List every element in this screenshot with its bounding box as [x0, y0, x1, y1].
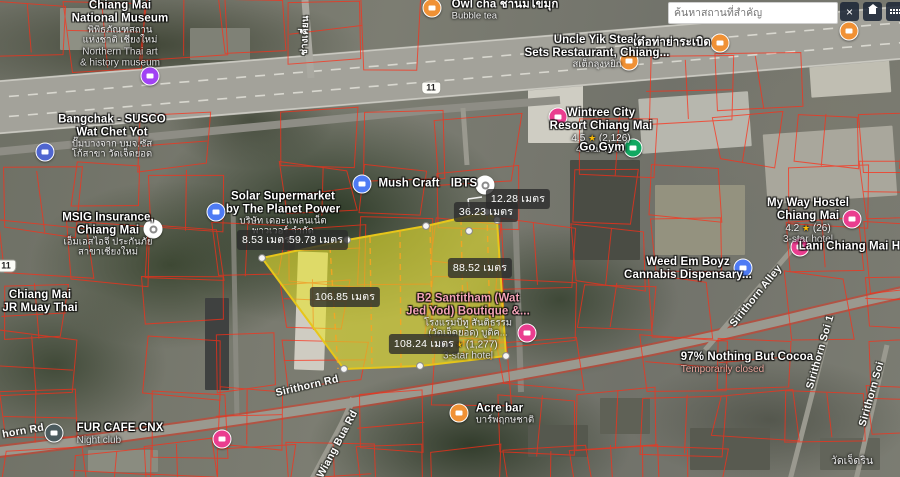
- map-canvas[interactable]: 8.53 เมตร 59.78 เมตร 12.28 เมตร 36.23 เม…: [0, 0, 900, 477]
- home-icon: [868, 8, 877, 16]
- place-label-acre-bar[interactable]: Acre bar บาร์พฤกษชาติ: [476, 402, 534, 426]
- place-label-weed-em-boyz[interactable]: Weed Em Boyz Cannabis Dispensary...: [624, 256, 752, 282]
- hotel-icon[interactable]: [213, 430, 232, 449]
- highway-11-shield: 11: [421, 82, 441, 95]
- place-label-bangchak[interactable]: Bangchak - SUSCO Wat Chet Yot ปั๊มบางจาก…: [58, 114, 166, 161]
- gas-station-icon[interactable]: [36, 143, 55, 162]
- place-label-owl-cha[interactable]: Owl cha ชานมไข่มุก Bubble tea: [452, 0, 559, 22]
- place-label-nothing-but-cocoa[interactable]: 97% Nothing But Cocoa Temporarily closed: [681, 351, 813, 375]
- clear-search-button[interactable]: ×: [840, 2, 859, 21]
- measurement-label: 106.85 เมตร: [310, 287, 380, 307]
- restaurant-icon[interactable]: [840, 22, 859, 41]
- nightclub-icon[interactable]: [45, 424, 64, 443]
- measurement-label: 59.78 เมตร: [284, 230, 348, 250]
- place-label-jr-muay-thai[interactable]: Chiang Mai JR Muay Thai: [2, 289, 77, 315]
- museum-icon[interactable]: [141, 67, 160, 86]
- search-input[interactable]: [668, 2, 838, 24]
- place-label-my-way-hostel[interactable]: My Way Hostel Chiang Mai 4.2 ★ (26) 3-st…: [767, 197, 849, 245]
- keyboard-grid-button[interactable]: [886, 2, 900, 21]
- place-label-ibts[interactable]: IBTS: [451, 178, 478, 191]
- place-label-national-museum[interactable]: Chiang Mai National Museum พิพิธภัณฑสถาน…: [72, 0, 169, 69]
- measurement-label: 108.24 เมตร: [389, 334, 459, 354]
- place-label-lani[interactable]: Lani Chiang Mai Ho...: [799, 241, 900, 254]
- place-label-wat-jed-rin[interactable]: วัดเจ็ดริน: [831, 456, 873, 468]
- home-button[interactable]: [863, 2, 882, 21]
- measurement-label: 36.23 เมตร: [454, 202, 518, 222]
- restaurant-icon[interactable]: [711, 34, 730, 53]
- shopping-icon[interactable]: [207, 203, 226, 222]
- restaurant-icon[interactable]: [450, 404, 469, 423]
- measurement-label: 88.52 เมตร: [448, 258, 512, 278]
- search-toolbar: ×: [668, 2, 900, 24]
- place-label-toe-tha[interactable]: เต๋อท่าย่าระเบิด: [633, 37, 711, 50]
- road-label-chang-khian: ช่างเคี่ยน: [297, 15, 313, 56]
- place-label-fur-cafe[interactable]: FUR CAFE CNX Night club: [77, 422, 164, 446]
- place-label-go-gym[interactable]: Go Gym: [579, 142, 624, 155]
- shopping-icon[interactable]: [353, 175, 372, 194]
- keyboard-grid-icon: [890, 9, 892, 11]
- highway-11-shield: 11: [0, 260, 16, 273]
- place-label-msig[interactable]: MSIG Insurance, Chiang Mai เอ็มเอสไอจี ป…: [62, 212, 154, 259]
- place-label-mush-craft[interactable]: Mush Craft: [378, 178, 439, 191]
